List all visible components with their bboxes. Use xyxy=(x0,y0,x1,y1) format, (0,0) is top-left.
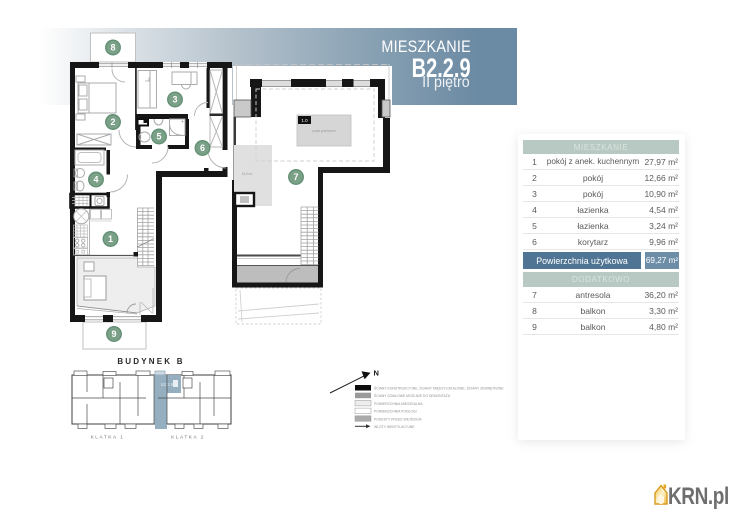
svg-text:ŚCIANY KONSTRUKCYJNE, ŚCIANY M: ŚCIANY KONSTRUKCYJNE, ŚCIANY MIĘDZYLOKAL… xyxy=(374,386,504,391)
svg-text:pusta przestrzeń: pusta przestrzeń xyxy=(312,129,336,133)
svg-text:7: 7 xyxy=(293,172,298,182)
svg-text:4: 4 xyxy=(93,175,98,185)
svg-text:5: 5 xyxy=(156,132,161,142)
svg-text:POWIERZCHNIA PODŁOGI: POWIERZCHNIA PODŁOGI xyxy=(374,410,417,414)
svg-text:N: N xyxy=(374,369,379,378)
svg-text:KLATKA 2: KLATKA 2 xyxy=(171,435,205,441)
svg-text:1: 1 xyxy=(108,234,113,244)
svg-text:16,9 m²: 16,9 m² xyxy=(242,172,253,176)
svg-text:9: 9 xyxy=(111,329,116,339)
svg-text:3: 3 xyxy=(172,95,177,105)
svg-text:KLATKA 1: KLATKA 1 xyxy=(91,435,125,441)
svg-text:8: 8 xyxy=(110,43,115,53)
svg-text:6: 6 xyxy=(200,143,205,153)
svg-text:PODESTY PRZED WEJŚCIEM: PODESTY PRZED WEJŚCIEM xyxy=(374,416,422,421)
svg-text:BUDYNEK B: BUDYNEK B xyxy=(117,357,184,366)
svg-text:POWIERZCHNIA MIESZKALNA: POWIERZCHNIA MIESZKALNA xyxy=(374,402,423,406)
svg-text:WLOTY WENTYLACYJNE: WLOTY WENTYLACYJNE xyxy=(374,425,415,429)
svg-text:2: 2 xyxy=(110,117,115,127)
svg-text:1.0: 1.0 xyxy=(301,118,308,123)
svg-text:ŚCIANY DZIAŁOWE MOŻLIWE DO DEM: ŚCIANY DZIAŁOWE MOŻLIWE DO DEMONTAŻU xyxy=(374,393,451,398)
